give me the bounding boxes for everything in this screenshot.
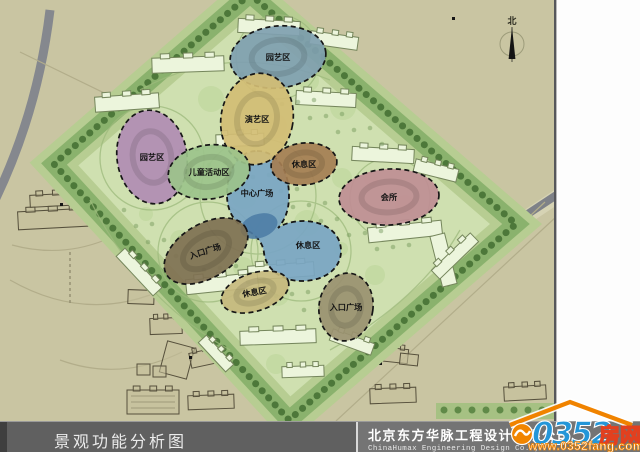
building-row (240, 325, 317, 346)
watermark-url: www.0352fang.com (527, 439, 640, 452)
map-right-border (554, 0, 556, 421)
zone-label: 中心广场 (241, 188, 274, 198)
building-row (188, 390, 235, 410)
zone-label: 演艺区 (245, 114, 270, 124)
building-row (127, 386, 179, 414)
north-label: 北 (507, 15, 516, 26)
zone-label: 儿童活动区 (188, 167, 230, 177)
building-row (370, 383, 417, 404)
zone-label: 会所 (381, 192, 398, 202)
building-row (94, 89, 159, 112)
drawing-title: 景观功能分析图 (54, 428, 187, 452)
zone-label: 园艺区 (266, 52, 291, 62)
title-bar-left: 景观功能分析图 (0, 422, 356, 452)
screenshot-stage: 中心广场休息区园艺区演艺区园艺区儿童活动区休息区会所入口广场休息区入口广场 北 … (0, 0, 640, 452)
title-bar-notch (0, 422, 7, 452)
building-row (296, 86, 357, 107)
site-watermark: 0352 房网 www.0352fang.com (498, 396, 640, 452)
site-plan-map: 中心广场休息区园艺区演艺区园艺区儿童活动区休息区会所入口广场休息区入口广场 北 (0, 0, 640, 421)
white-margin (556, 0, 640, 421)
zone-label: 园艺区 (140, 152, 165, 162)
building-row (152, 52, 225, 74)
building-row (153, 366, 166, 377)
zone-label: 休息区 (291, 159, 317, 169)
zone-label: 休息区 (295, 240, 321, 250)
building-row (282, 361, 324, 377)
building-row (399, 353, 418, 366)
building-row (137, 364, 150, 375)
zone-label: 入口广场 (329, 302, 363, 312)
